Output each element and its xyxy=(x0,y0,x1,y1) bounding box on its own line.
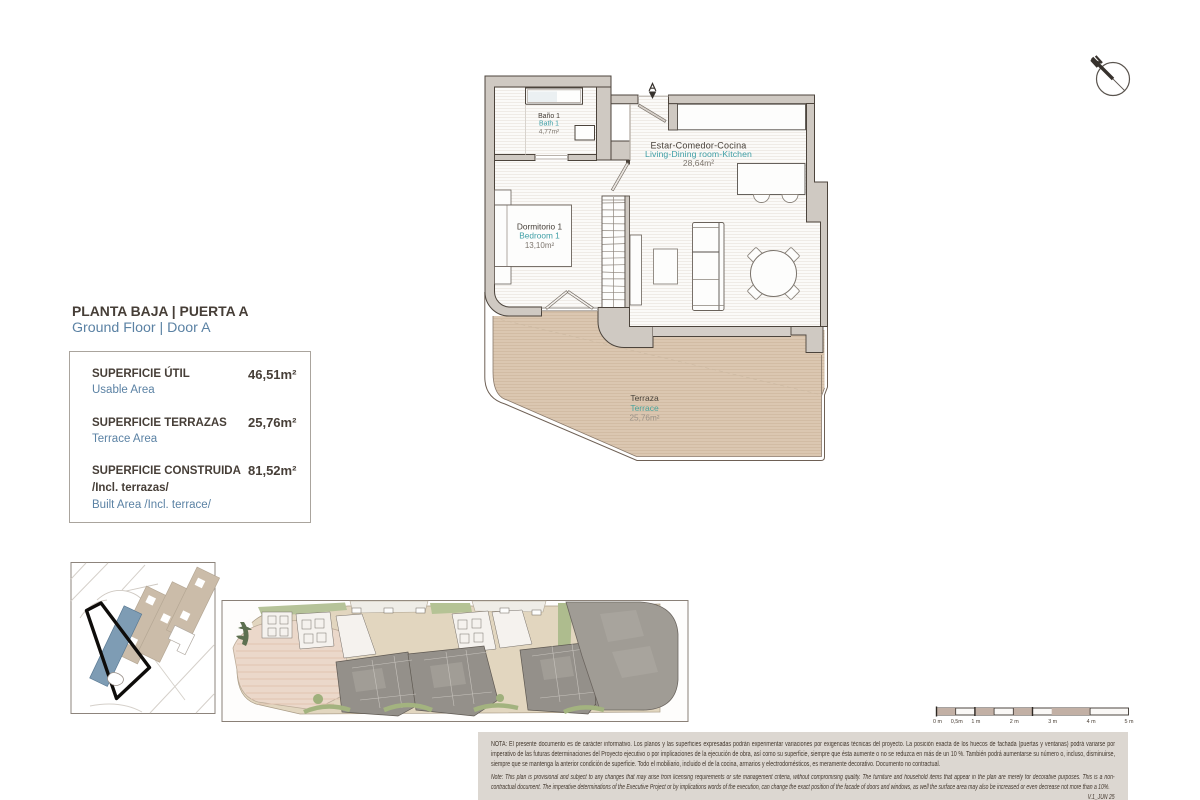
svg-text:Bath 1: Bath 1 xyxy=(539,121,559,128)
svg-text:0 m: 0 m xyxy=(933,719,942,725)
svg-text:2 m: 2 m xyxy=(1010,719,1019,725)
svg-text:Terrace: Terrace xyxy=(630,403,659,413)
svg-text:28,64m²: 28,64m² xyxy=(683,158,714,168)
svg-text:4 m: 4 m xyxy=(1087,719,1096,725)
svg-text:Terraza: Terraza xyxy=(630,393,659,403)
svg-text:Bedroom 1: Bedroom 1 xyxy=(519,231,560,241)
svg-text:1 m: 1 m xyxy=(971,719,980,725)
svg-text:3 m: 3 m xyxy=(1048,719,1057,725)
svg-text:0,5m: 0,5m xyxy=(951,719,963,725)
svg-text:4,77m²: 4,77m² xyxy=(539,129,560,136)
svg-text:5 m: 5 m xyxy=(1125,719,1134,725)
svg-text:Baño 1: Baño 1 xyxy=(538,113,560,120)
svg-text:13,10m²: 13,10m² xyxy=(525,241,555,250)
svg-text:25,76m²: 25,76m² xyxy=(629,414,659,423)
